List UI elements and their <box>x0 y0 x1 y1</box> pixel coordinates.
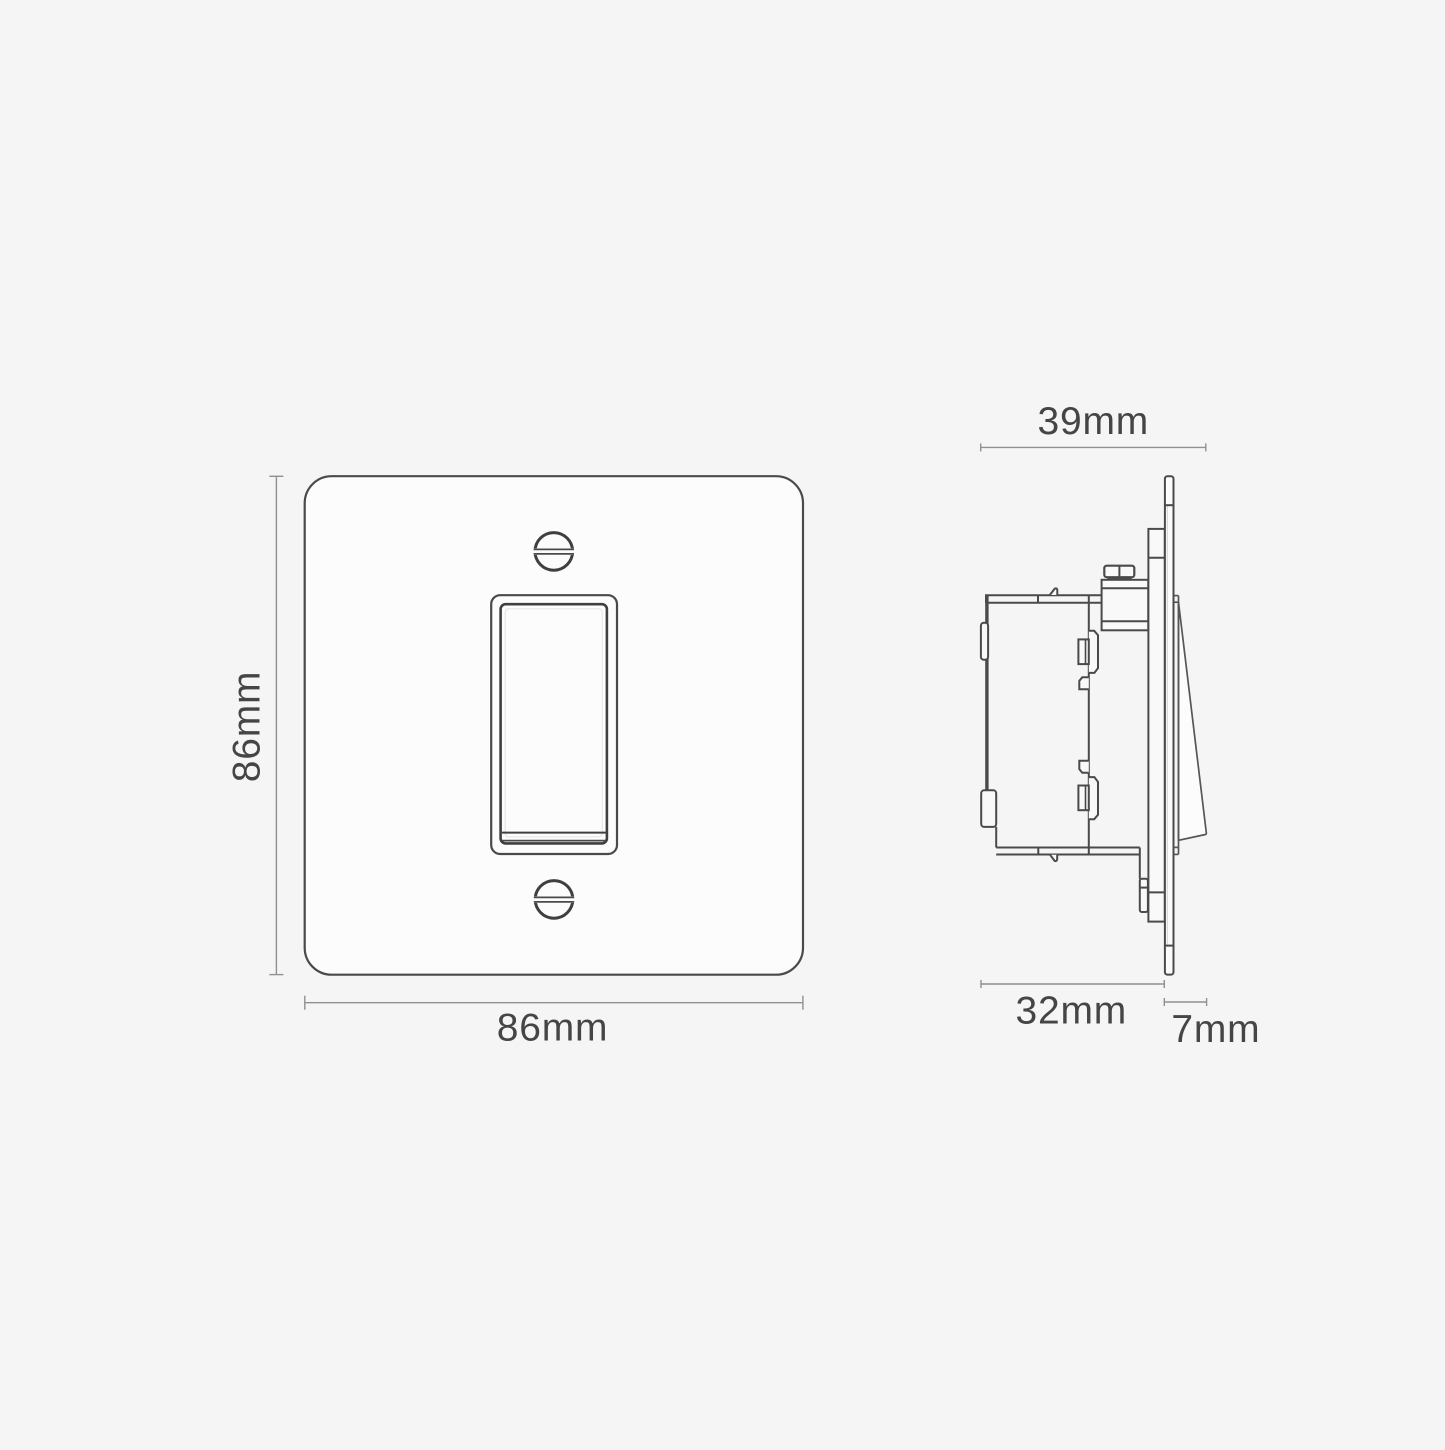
svg-text:86mm: 86mm <box>225 671 268 783</box>
svg-text:7mm: 7mm <box>1171 1008 1260 1051</box>
svg-text:86mm: 86mm <box>497 1007 609 1050</box>
svg-text:39mm: 39mm <box>1038 400 1150 443</box>
svg-text:32mm: 32mm <box>1016 990 1128 1033</box>
